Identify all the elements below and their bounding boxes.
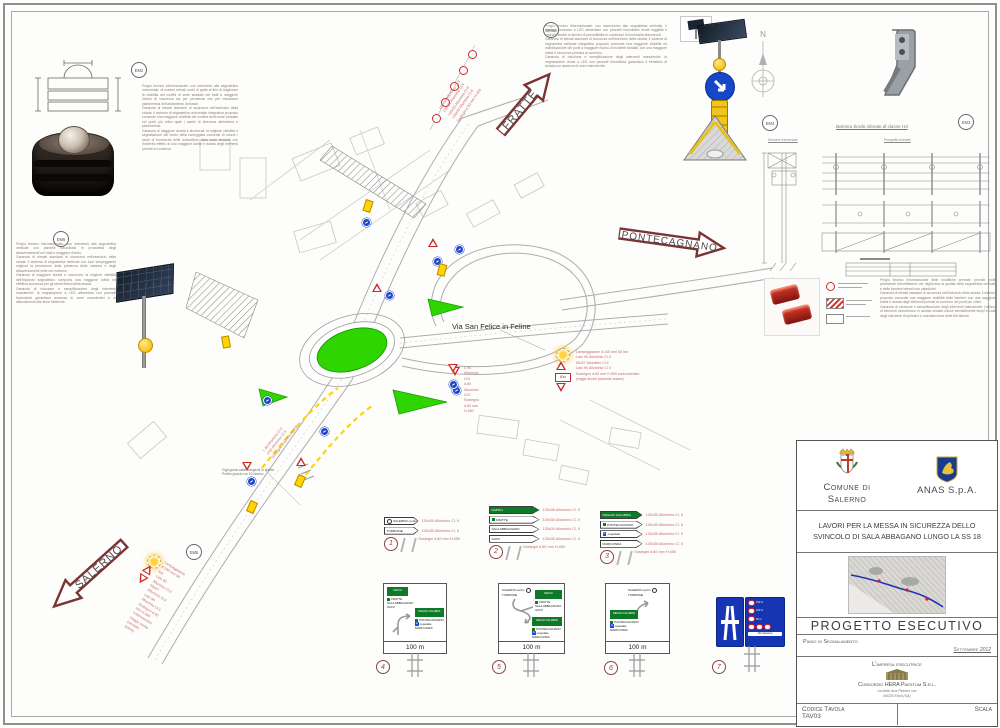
- motorway-chip: NAPOLI: [535, 590, 562, 599]
- scale-label: Scala: [903, 706, 993, 713]
- motorway-chip: REGGIO CALABRIA: [532, 617, 562, 626]
- em4-callout: EM4: [762, 115, 778, 131]
- em6-note-text: Pregio tecnico informazionale: con inter…: [16, 242, 116, 410]
- barrier-front-label: Prospetto frontale: [884, 138, 911, 142]
- panel-number: 7: [712, 660, 726, 674]
- client-cell: Comune di Salerno: [797, 441, 897, 510]
- north-compass-icon: N: [746, 30, 780, 102]
- distance-plate: 60m: [555, 373, 571, 382]
- motorway-start-sign: [716, 597, 744, 647]
- motorway-chip: REGGIO CALABRIA: [415, 608, 444, 617]
- motorway-chip: REGGIO CALABRIA: [610, 610, 638, 619]
- street-name-label: Via San Felice in Feline: [452, 322, 531, 331]
- barrier-title: Barriera bordo rilevato di classe H3: [836, 124, 908, 129]
- mounting-bracket-photo: [862, 26, 928, 104]
- contractor-heading: L'impresa esecutrice: [872, 662, 922, 668]
- item-number: 2: [489, 545, 503, 559]
- legend-item-2: NAPOLI130x30 Alluminio Cl. II FRATTE130x…: [489, 506, 580, 560]
- giveway-legend-text: L.90 Alluminio Cl.II d.60 Alluminio Cl.I…: [464, 366, 479, 415]
- solar-lamp-photo: [112, 266, 184, 381]
- item-number: 3: [600, 550, 614, 564]
- agency-cell: ANAS S.p.A.: [897, 441, 997, 510]
- barrier-section-label: Sezione trasversale: [768, 138, 798, 142]
- contractor-address-2: 84025 Eboli (SA): [883, 694, 910, 698]
- road-stud-section-drawing: [28, 58, 124, 124]
- preavviso-panel-6: SALERNO centro TORRIONE REGGIO CALABRIA …: [605, 583, 670, 642]
- flasher-legend-text: Lampeggiatore d.100 mm 60 led Lato 90 Al…: [576, 350, 640, 382]
- reflector-detail-sketch: [824, 280, 878, 326]
- panel-post: [405, 653, 425, 677]
- ground-marking-note: Cigli guida catarifrangenti in resina Pr…: [222, 468, 302, 477]
- panel-number: 5: [492, 660, 506, 674]
- item-number: 1: [384, 537, 398, 551]
- anas-logo-icon: [935, 455, 959, 483]
- compass-north-label: N: [746, 30, 780, 39]
- date-label: Settembre 2012: [953, 647, 991, 653]
- em2-callout: EM2: [131, 62, 147, 78]
- right-side-note-text: Pregio tecnico informazionale delle modi…: [880, 278, 996, 434]
- drawing-sheet: FRATTE PONTECAGNANO SALERNO Via San Feli…: [0, 0, 1000, 728]
- motorway-rules-sign: 150 m 100 m 50 m NO autostop: [745, 597, 785, 647]
- drawing-code-value: TAV03: [802, 713, 892, 720]
- road-stud-photo: [32, 126, 114, 196]
- top-center-note-text: Pregio tecnico informazionale: con inser…: [545, 24, 667, 138]
- agency-name: ANAS S.p.A.: [917, 485, 977, 497]
- client-name: Comune di Salerno: [812, 482, 882, 506]
- motorway-chip: NAPOLI: [387, 587, 408, 596]
- salerno-crest-icon: [831, 446, 863, 480]
- title-block: Comune di Salerno ANAS S.p.A. LAVORI PER…: [796, 440, 998, 727]
- project-stage: PROGETTO ESECUTIVO: [797, 618, 997, 635]
- em6-bottom-callout: EM6: [186, 544, 202, 560]
- drawing-code-label: Codice Tavola: [802, 706, 892, 713]
- panel-number: 4: [376, 660, 390, 674]
- preavviso-panel-5: SALERNO centro TORRIONE NAPOLI FRATTE SA…: [498, 583, 565, 642]
- doc-type-label: Piano di Segnalamento: [803, 639, 858, 645]
- panel-post: [742, 646, 762, 672]
- location-map-thumbnail: [848, 556, 946, 614]
- pontecagnano-arrow-label: PONTECAGNANO: [621, 230, 719, 254]
- panel-post: [521, 653, 541, 677]
- panel-number: 6: [604, 661, 618, 675]
- reflector-photo: [764, 278, 820, 336]
- legend-item-3: REGGIO CALABRIA130x30 Alluminio Cl. II P…: [600, 511, 683, 565]
- barrier-detail-drawing: [760, 145, 995, 277]
- em3-callout: EM3: [958, 114, 974, 130]
- em2-note-text: Pregio tecnico informazionale: con inter…: [142, 84, 238, 182]
- solar-sign-assembly: [680, 12, 750, 164]
- contractor-name: Consorzio HERA Paestum S.r.l.: [858, 682, 936, 688]
- panel-post: [627, 653, 647, 677]
- contractor-address-1: Località Isca Petraro snc: [877, 689, 916, 693]
- legend-item-1: SALERNO centro130x30 Alluminio Cl. II TO…: [384, 517, 460, 552]
- contractor-logo-icon: [884, 669, 910, 681]
- preavviso-panel-4: NAPOLI FRATTE SALA ABBAGNANO GIOVI REGGI…: [383, 583, 447, 642]
- project-title: LAVORI PER LA MESSA IN SICUREZZA DELLO S…: [797, 511, 997, 553]
